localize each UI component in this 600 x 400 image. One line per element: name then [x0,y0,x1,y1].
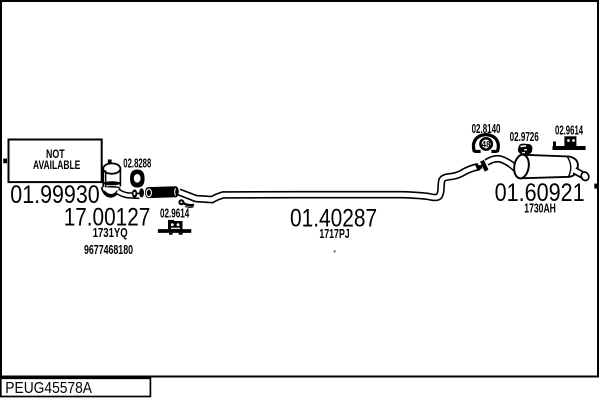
svg-text:02.9614: 02.9614 [160,207,189,221]
svg-text:NOT: NOT [46,149,65,161]
svg-text:AVAILABLE: AVAILABLE [33,160,81,172]
svg-text:02.8288: 02.8288 [123,157,151,171]
svg-text:1731YQ: 1731YQ [93,226,128,240]
svg-text:48: 48 [482,140,491,151]
svg-text:PEUG45578A: PEUG45578A [5,380,92,397]
svg-text:9677468180: 9677468180 [84,243,133,257]
svg-text:1730AH: 1730AH [524,202,556,216]
svg-text:02.9614: 02.9614 [555,123,583,137]
svg-text:02.9726: 02.9726 [510,130,539,144]
svg-text:1717PJ: 1717PJ [319,227,349,241]
